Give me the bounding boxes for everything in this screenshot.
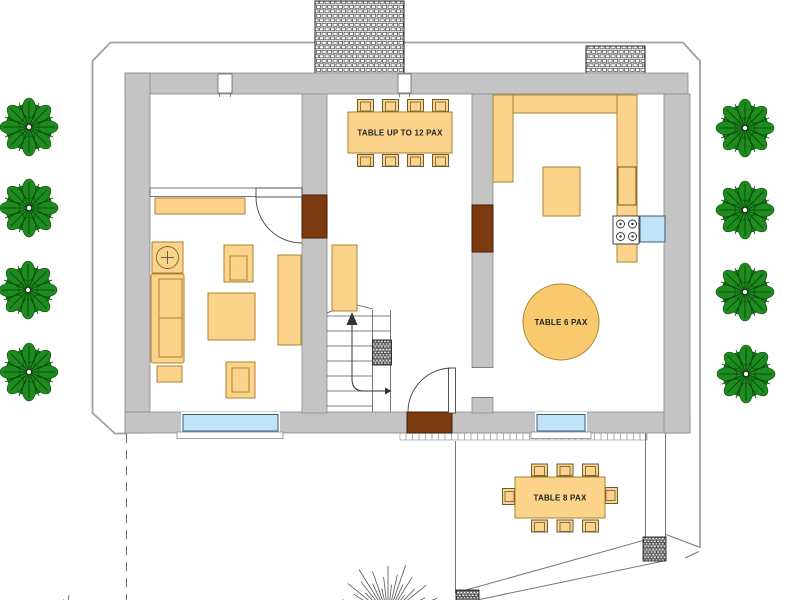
tree-icon (0, 179, 58, 237)
console-living (278, 255, 301, 345)
terrace-pillar-right (643, 537, 666, 561)
chair-icon (383, 100, 399, 112)
window-kitchen-south (537, 415, 585, 432)
tree-icon (0, 98, 58, 156)
chair-icon (358, 155, 374, 167)
palm-plant-icon (343, 565, 438, 600)
chair-icon (583, 464, 599, 476)
passage-hall-kitchen (472, 367, 494, 398)
chair-icon (383, 155, 399, 167)
terrace-furniture: TABLE 8 PAX (503, 464, 618, 532)
tree-icon (717, 345, 775, 403)
window-living (183, 415, 278, 432)
door-hall-kitchen (472, 205, 493, 252)
door-hall-terrace (407, 412, 452, 433)
door-leaf-terrace (449, 368, 456, 413)
hall-furniture: TABLE UP TO 12 PAX (332, 100, 452, 312)
window-sill-living (177, 432, 283, 439)
counter-left-arm (493, 95, 513, 182)
sofa-cushion (159, 279, 182, 318)
chair-icon (358, 100, 374, 112)
chair-icon (408, 155, 424, 167)
kitchen-island (543, 167, 580, 216)
window-top-hall (398, 74, 411, 93)
door-arc-terrace (408, 368, 452, 412)
console-hall (332, 245, 357, 311)
wall-hall-right (472, 94, 493, 413)
window-sill-kitchen-south (531, 432, 591, 439)
chimney-top-right (586, 46, 645, 73)
tree-icon (0, 343, 58, 401)
chair-icon (503, 489, 515, 505)
chair-icon (583, 520, 599, 532)
living-room-furniture (151, 198, 301, 398)
stove (613, 216, 639, 244)
tree-icon (716, 99, 774, 157)
stair-pillar (373, 340, 392, 365)
sideboard (155, 198, 245, 214)
sink-unit (618, 167, 636, 205)
palm-plant-small-icon (53, 595, 86, 600)
armchair-lower-seat (232, 368, 249, 392)
wall-hall-left (302, 94, 327, 413)
chair-icon (433, 100, 449, 112)
stair-arrowhead-up (347, 312, 358, 325)
wall-right (664, 94, 690, 433)
wall-left (125, 73, 150, 433)
chair-icon (606, 488, 618, 504)
dining-table-12-label: TABLE UP TO 12 PAX (357, 129, 443, 138)
door-living-hall (302, 195, 327, 238)
sofa-cushion (159, 318, 182, 357)
window-kitchen-east (640, 216, 665, 242)
floor-plan-drawing: TABLE UP TO 12 PAX TABLE 6 PAX TABLE (0, 0, 800, 600)
floor-plan-canvas: TABLE UP TO 12 PAX TABLE 6 PAX TABLE (0, 0, 800, 600)
door-arc-living (256, 197, 302, 243)
staircase (327, 303, 392, 412)
chimney-top-center (315, 1, 404, 73)
tree-icon (716, 263, 774, 321)
doors (302, 195, 493, 433)
tree-icon (0, 261, 57, 319)
window-top-left (218, 74, 232, 93)
chair-icon (532, 464, 548, 476)
ottoman (157, 366, 182, 382)
terrace-table-8-label: TABLE 8 PAX (533, 494, 586, 503)
terrace-pillar-left (456, 590, 479, 600)
chair-icon (532, 520, 548, 532)
chair-icon (408, 100, 424, 112)
chair-icon (557, 520, 573, 532)
chair-icon (557, 464, 573, 476)
door-leaf-living (256, 188, 302, 197)
armchair-upper-seat (230, 256, 247, 280)
counter-below-stove (617, 243, 637, 262)
paved-step-strip (400, 433, 647, 440)
coffee-table (208, 293, 255, 340)
chair-icon (433, 155, 449, 167)
round-table-6-label: TABLE 6 PAX (534, 318, 587, 327)
tree-icon (716, 181, 774, 239)
counter-top (493, 95, 637, 113)
